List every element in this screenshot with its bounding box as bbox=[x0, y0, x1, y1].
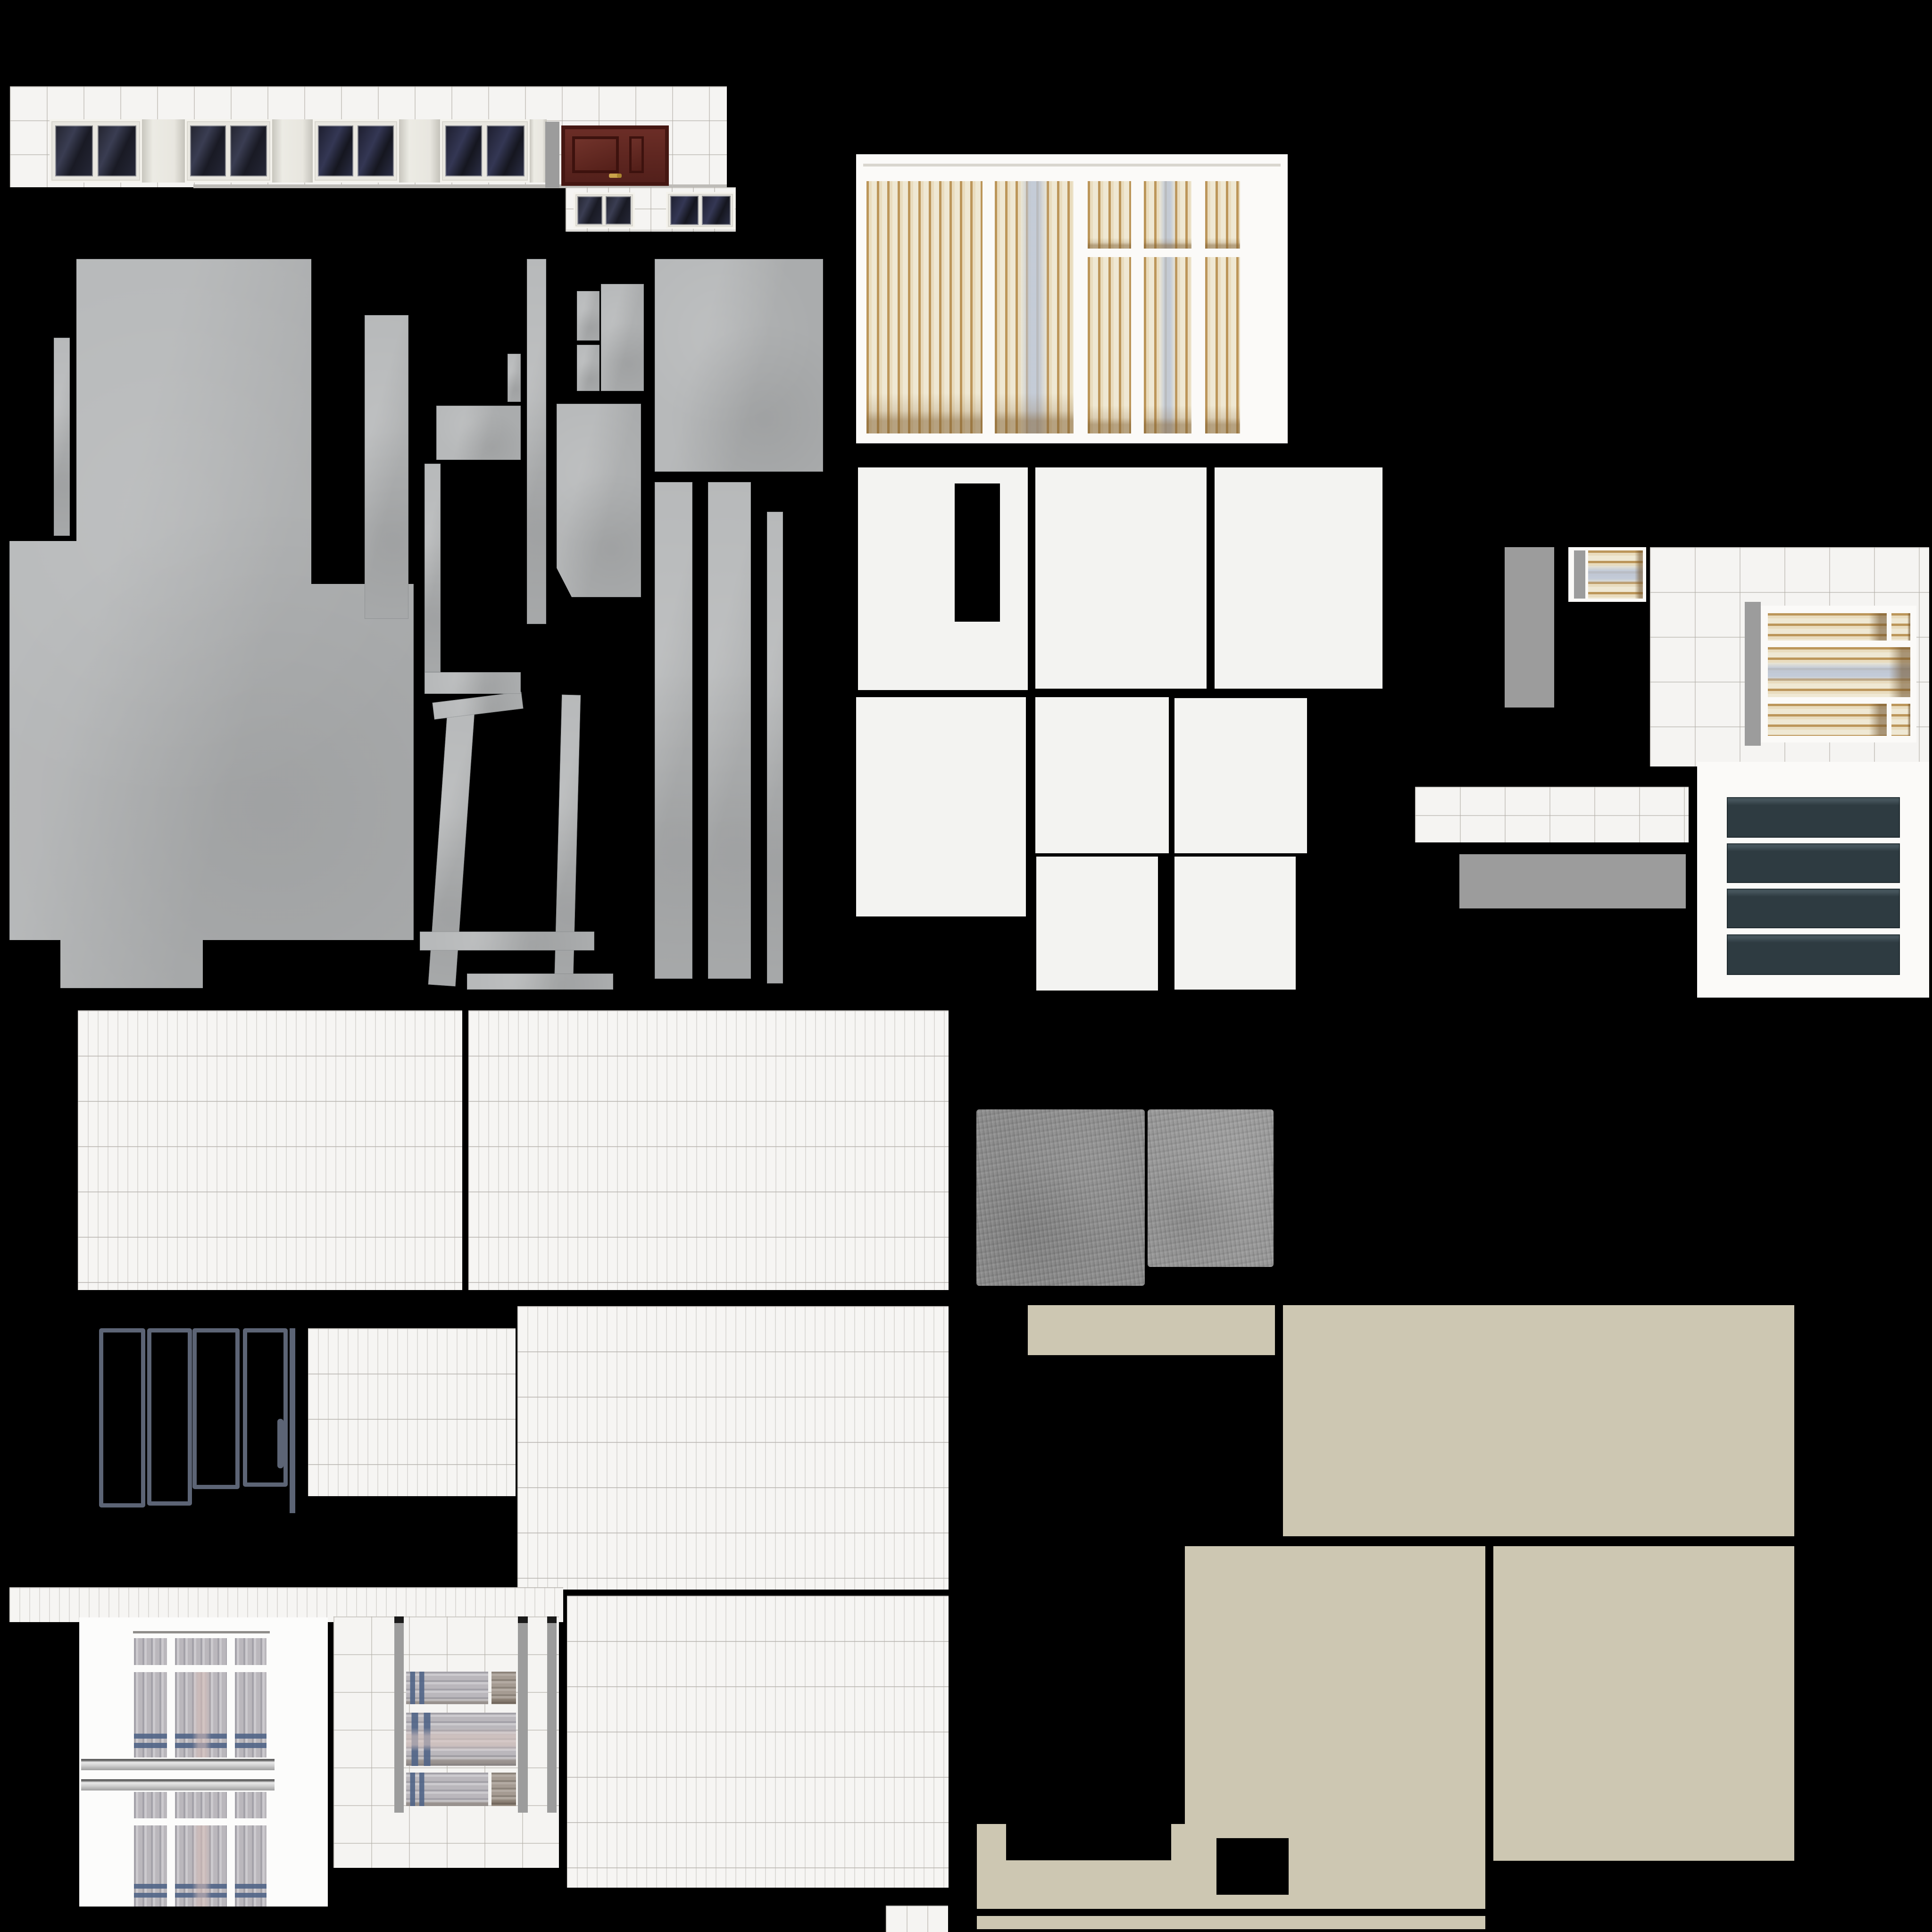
facade-rot-curtain bbox=[406, 1672, 488, 1704]
concrete-slab-main bbox=[9, 259, 414, 988]
concrete-slanted-cap bbox=[433, 692, 524, 720]
facade-header-line bbox=[133, 1631, 270, 1633]
facade-curtain-pane bbox=[235, 1792, 266, 1818]
tile-strip bbox=[1415, 787, 1689, 842]
curtain-pane bbox=[1088, 181, 1131, 249]
facade-curtain-pane bbox=[235, 1825, 266, 1907]
concrete-strip bbox=[420, 932, 594, 950]
concrete-strip bbox=[508, 354, 521, 402]
texture-atlas bbox=[0, 0, 1932, 1932]
white-panel bbox=[858, 467, 1028, 690]
window-thumb-curtain bbox=[1588, 550, 1643, 599]
facade-post-cap bbox=[394, 1616, 404, 1623]
tiled-wall-panel bbox=[308, 1328, 516, 1496]
glass-slat bbox=[1727, 889, 1900, 928]
rotated-curtain-pane bbox=[1768, 704, 1887, 736]
roof-piece bbox=[1493, 1546, 1794, 1861]
dark-window-unit bbox=[574, 192, 635, 228]
facade-curtain-pane bbox=[175, 1825, 227, 1907]
roof-piece bbox=[1028, 1305, 1275, 1355]
tile-square-small bbox=[886, 1906, 948, 1932]
concrete-chunk bbox=[557, 404, 641, 597]
curtain-pane bbox=[1144, 181, 1191, 249]
curtain-pane bbox=[1205, 257, 1240, 433]
concrete-strip bbox=[601, 284, 644, 391]
facade-sill bbox=[81, 1759, 275, 1770]
facade-rot-curtain bbox=[491, 1773, 516, 1806]
wood-door bbox=[561, 125, 669, 186]
facade-curtain-pane bbox=[134, 1825, 167, 1907]
white-panel bbox=[1036, 857, 1158, 991]
stone-pilaster bbox=[399, 119, 440, 183]
gray-separator-bar bbox=[545, 122, 559, 188]
window-side-bar bbox=[1745, 602, 1761, 746]
dark-window-unit bbox=[440, 119, 530, 183]
concrete-column bbox=[767, 512, 783, 983]
facade-curtain-pane bbox=[235, 1672, 266, 1757]
concrete-strip bbox=[577, 291, 600, 341]
concrete-strip bbox=[527, 259, 546, 624]
tiled-wall-panel bbox=[517, 1306, 949, 1590]
white-panel bbox=[1035, 697, 1169, 853]
concrete-strip bbox=[425, 464, 441, 672]
dark-window-unit bbox=[666, 192, 735, 229]
stone-pilaster bbox=[530, 119, 547, 183]
window-thumb-bar bbox=[1574, 550, 1585, 599]
curtain-pane bbox=[1088, 257, 1131, 433]
white-panel bbox=[1035, 467, 1207, 689]
concrete-strip bbox=[577, 345, 600, 391]
stone-pilaster bbox=[142, 119, 185, 183]
concrete-square bbox=[655, 259, 823, 472]
facade-curtain-pane bbox=[175, 1672, 227, 1757]
concrete-strip bbox=[436, 406, 521, 460]
white-panel bbox=[1215, 467, 1382, 689]
facade-post-cap bbox=[547, 1616, 557, 1623]
facade-curtain-pane bbox=[235, 1638, 266, 1665]
gray-post bbox=[1505, 547, 1554, 708]
roof-piece bbox=[1283, 1305, 1794, 1536]
roof-edge-notch bbox=[1216, 1838, 1289, 1895]
white-panel bbox=[1174, 857, 1296, 990]
facade-curtain-pane bbox=[175, 1792, 227, 1818]
facade-sill bbox=[81, 1779, 275, 1790]
curtain-pane bbox=[1144, 257, 1191, 433]
facade-curtain-pane bbox=[175, 1638, 227, 1665]
white-panel bbox=[1174, 698, 1307, 853]
facade-rot-curtain bbox=[406, 1713, 516, 1766]
facade-curtain-pane bbox=[134, 1792, 167, 1818]
facade-rot-curtain bbox=[406, 1773, 488, 1806]
door-frame-handle bbox=[277, 1419, 283, 1468]
facade-post bbox=[394, 1623, 404, 1813]
white-panel bbox=[856, 697, 1026, 916]
door-frame-outline bbox=[192, 1328, 240, 1489]
door-frame-outline bbox=[147, 1328, 192, 1506]
roof-strip bbox=[977, 1916, 1485, 1929]
concrete-column bbox=[708, 482, 751, 979]
facade-post bbox=[547, 1623, 557, 1813]
concrete-strip bbox=[425, 672, 521, 694]
curtain-pane bbox=[995, 181, 1074, 433]
dark-window-unit bbox=[185, 119, 272, 183]
facade-curtain-pane bbox=[134, 1672, 167, 1757]
tiled-wall-panel bbox=[78, 1010, 462, 1290]
glass-slat bbox=[1727, 797, 1900, 838]
facade-rot-curtain bbox=[491, 1672, 516, 1704]
facade-post-cap bbox=[518, 1616, 528, 1623]
glass-slat bbox=[1727, 843, 1900, 883]
panel-cutout bbox=[955, 483, 1000, 622]
stone-pilaster bbox=[272, 119, 313, 183]
mottled-plaster bbox=[976, 1109, 1145, 1286]
glass-slat bbox=[1727, 934, 1900, 975]
facade-curtain-pane bbox=[134, 1638, 167, 1665]
curtain-pane bbox=[1205, 181, 1240, 249]
concrete-strip bbox=[365, 315, 408, 619]
rotated-curtain-pane bbox=[1768, 647, 1910, 697]
concrete-strip bbox=[54, 338, 70, 536]
tiled-wall-panel bbox=[567, 1596, 949, 1888]
concrete-strip bbox=[467, 974, 613, 990]
rotated-curtain-pane bbox=[1891, 704, 1910, 736]
dark-window-unit bbox=[50, 119, 142, 183]
door-frame-outline bbox=[99, 1328, 145, 1507]
facade-post bbox=[518, 1623, 528, 1813]
tiled-wall-panel bbox=[468, 1010, 949, 1290]
roof-piece bbox=[1185, 1546, 1485, 1857]
gray-beam bbox=[1459, 854, 1686, 908]
mottled-plaster bbox=[1148, 1109, 1274, 1267]
door-frame-rail bbox=[290, 1328, 295, 1513]
rotated-curtain-pane bbox=[1768, 613, 1887, 641]
rotated-curtain-pane bbox=[1891, 613, 1910, 641]
concrete-column bbox=[655, 482, 692, 979]
curtain-window-header-line bbox=[863, 164, 1281, 167]
curtain-pane bbox=[866, 181, 983, 433]
dark-window-unit bbox=[313, 119, 399, 183]
